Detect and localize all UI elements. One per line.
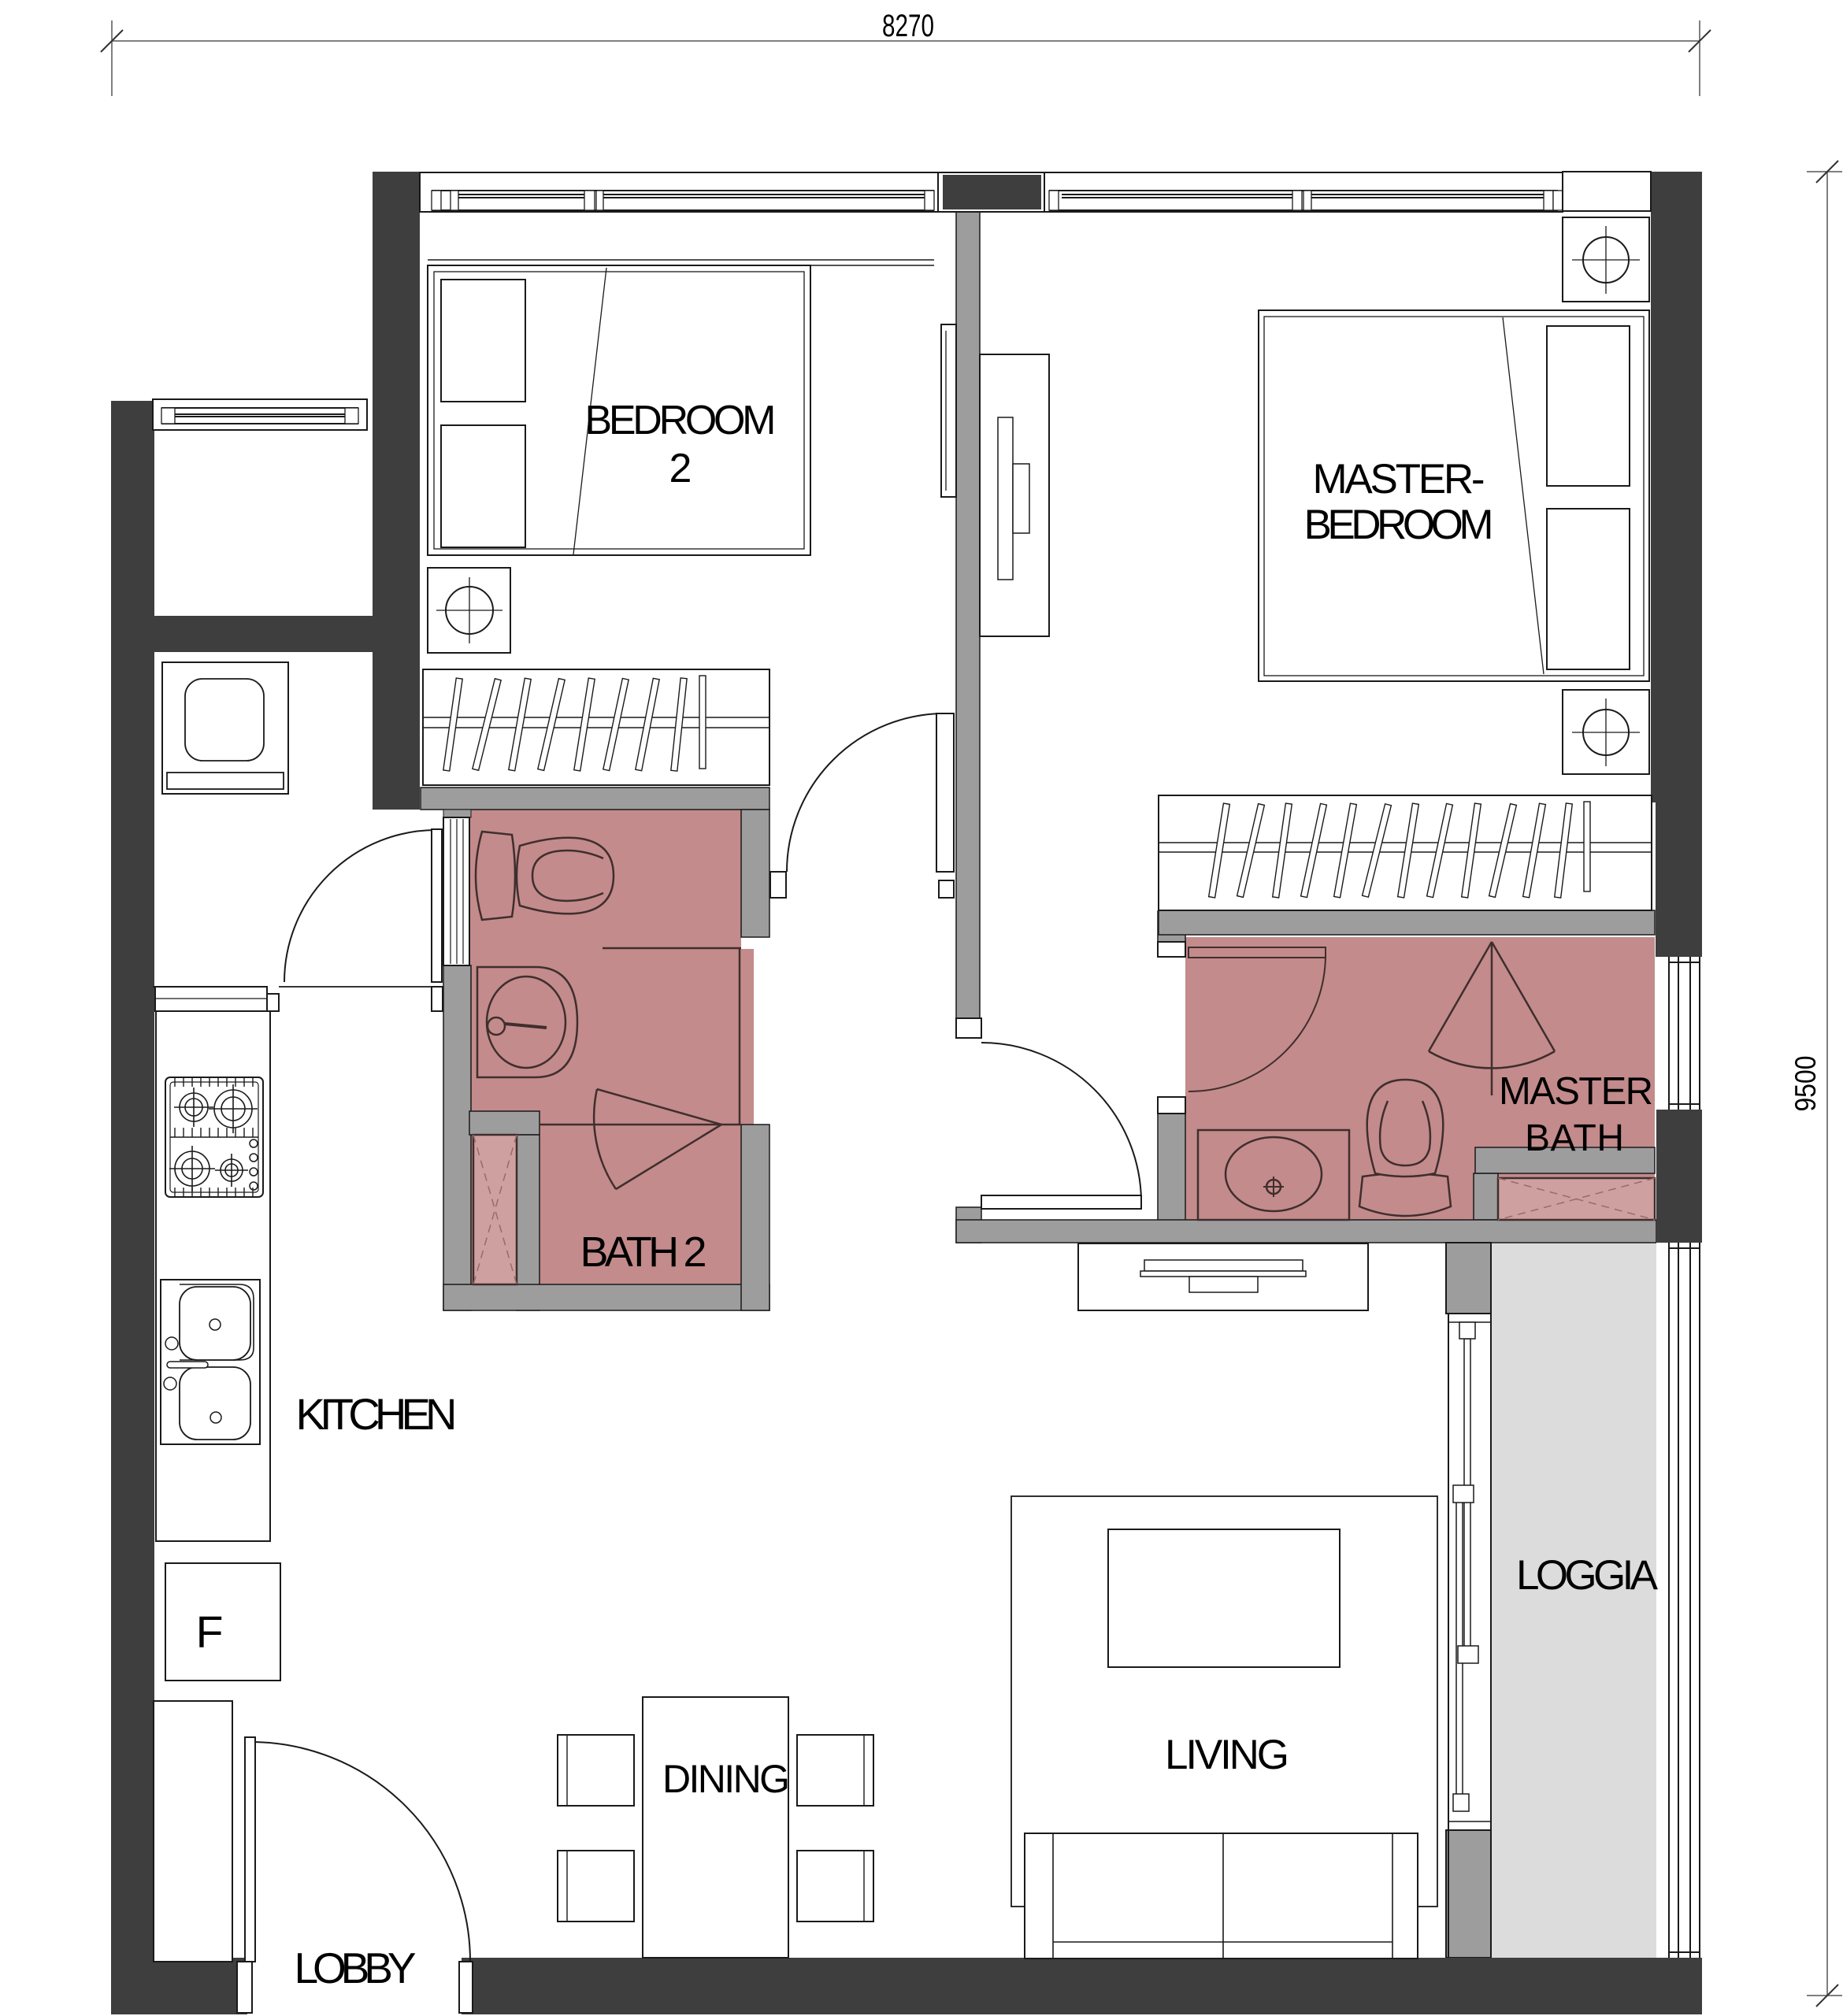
svg-text:BEDROOM: BEDROOM [1304,502,1494,548]
svg-text:LIVING: LIVING [1165,1732,1289,1778]
svg-text:KITCHEN: KITCHEN [296,1389,458,1439]
svg-text:BEDROOM: BEDROOM [585,398,777,443]
svg-text:9500: 9500 [1789,1056,1822,1112]
svg-text:LOBBY: LOBBY [295,1944,417,1992]
svg-text:MASTER: MASTER [1499,1070,1653,1113]
svg-text:BATH 2: BATH 2 [580,1228,707,1276]
svg-text:BATH: BATH [1525,1117,1624,1159]
svg-text:MASTER-: MASTER- [1313,456,1485,502]
svg-text:LOGGIA: LOGGIA [1516,1552,1659,1599]
svg-text:8270: 8270 [882,9,934,43]
svg-text:2: 2 [669,446,692,491]
svg-text:DINING: DINING [662,1757,790,1801]
svg-text:F: F [196,1607,224,1658]
